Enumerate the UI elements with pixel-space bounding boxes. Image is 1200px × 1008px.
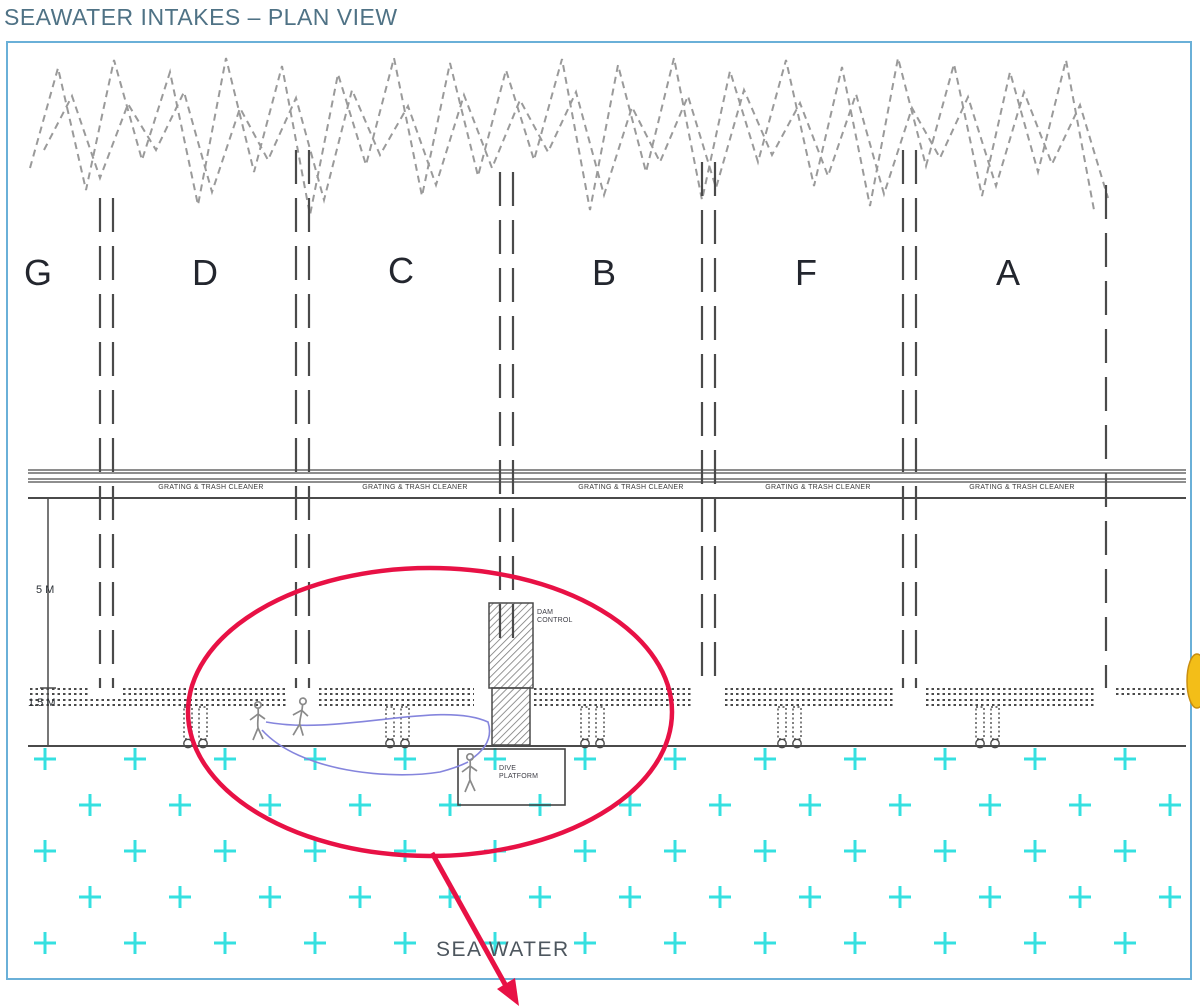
bay-divider-lines — [100, 150, 1106, 688]
seawater-pattern — [28, 742, 1186, 976]
grating-label: GRATING & TRASH CLEANER — [957, 484, 1087, 492]
dimension-grating-depth: 1.5 M — [28, 697, 56, 710]
intake-legs — [184, 707, 999, 748]
bay-label-a: A — [996, 252, 1020, 293]
dive-platform-line2: PLATFORM — [499, 773, 538, 781]
bay-label-f: F — [795, 252, 817, 293]
bay-label-d: D — [192, 252, 218, 293]
dam-control-line2: CONTROL — [537, 617, 573, 625]
diver-figure — [250, 702, 265, 740]
grating-label: GRATING & TRASH CLEANER — [350, 484, 480, 492]
dive-platform-label: DIVE PLATFORM — [499, 765, 538, 781]
grating-label: GRATING & TRASH CLEANER — [146, 484, 276, 492]
dam-control-label: DAM CONTROL — [537, 609, 573, 625]
waves-group — [30, 58, 1108, 215]
diver-figure — [290, 697, 310, 737]
highlight-marker — [1187, 654, 1200, 708]
bay-label-g: G — [24, 252, 52, 293]
dive-platform-line1: DIVE — [499, 765, 538, 773]
grating-band — [30, 689, 1186, 705]
dam-control-structure — [489, 603, 533, 745]
sea-water-label: SEA WATER — [436, 938, 570, 962]
grating-label: GRATING & TRASH CLEANER — [566, 484, 696, 492]
grating-label: GRATING & TRASH CLEANER — [753, 484, 883, 492]
bay-label-b: B — [592, 252, 616, 293]
bay-label-c: C — [388, 250, 414, 291]
diagram-canvas — [0, 0, 1200, 1008]
seawater-intakes-plan-view: SEAWATER INTAKES – PLAN VIEW — [0, 0, 1200, 1008]
dam-control-line1: DAM — [537, 609, 573, 617]
dimension-depth: 5 M — [36, 584, 54, 597]
